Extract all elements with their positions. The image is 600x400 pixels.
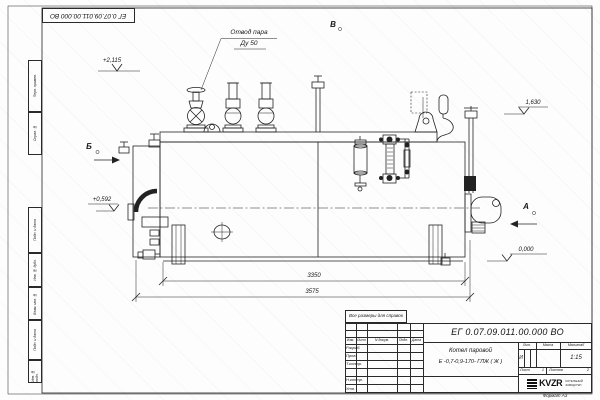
row-label-nkontr: Н.контр. xyxy=(346,376,368,384)
format-note: Формат А3 xyxy=(520,393,590,400)
frame-label-perv-primen: Перв. примен. xyxy=(28,60,42,112)
corner-stamp: ЕГ 0.07.09.011.00.000 ВО xyxy=(42,8,135,23)
logo-caption: КОТЕЛЬНЫЙ ЗАВОД РЭП xyxy=(565,380,583,387)
frame-label-vzam-inv: Взам. инв. № xyxy=(28,287,42,320)
lit-header: Лит. xyxy=(518,342,536,349)
frame-label-podp-data-2: Подп. и дата xyxy=(28,320,42,360)
elevation-1630: 1,630 xyxy=(516,98,550,107)
front-fittings xyxy=(119,134,168,259)
frame-label-podp-data-1: Подп. и дата xyxy=(28,207,42,253)
view-label-a: А xyxy=(520,202,532,212)
elevation-0000: 0,000 xyxy=(508,245,544,254)
sheet-value: 1 xyxy=(542,369,544,373)
row-label-tkontr: Т.контр. xyxy=(346,360,368,368)
sheets-value: 2 xyxy=(587,369,589,373)
frame-label-inv-dubl: Инв. № дубл. xyxy=(28,253,42,287)
sheet-label: Лист xyxy=(520,369,530,373)
logo-text: KVZR xyxy=(539,379,562,388)
product-name-line2: Е -0,7-0,9-170- ГЛЖ ( Ж ) xyxy=(423,357,518,369)
corner-stamp-text: ЕГ 0.07.09.011.00.000 ВО xyxy=(50,12,126,19)
product-name-line1: Котел паровой xyxy=(423,345,518,357)
scale-value: 1:15 xyxy=(560,349,592,367)
elevation-0592: +0,592 xyxy=(85,195,119,204)
mass-header: Масса xyxy=(536,342,560,349)
doc-number: ЕГ 0.07.09.011.00.000 ВО xyxy=(423,323,592,342)
sheets-label: Листов xyxy=(549,369,563,373)
drawing-sheet: ЕГ 0.07.09.011.00.000 ВО Перв. примен. С… xyxy=(0,0,600,400)
burner-assembly xyxy=(441,194,501,265)
condensate-vessel xyxy=(354,136,367,191)
row-label-razrab: Разраб. xyxy=(346,344,368,352)
view-label-b: Б xyxy=(83,142,95,152)
col-header-data: Дата xyxy=(410,337,423,344)
view-label-v: В xyxy=(327,20,339,30)
frame-label-sprav-no: Справ. № xyxy=(28,112,42,155)
col-header-list: Лист xyxy=(356,337,367,344)
callout-steam-outlet-line1: Отвод пара xyxy=(219,29,279,38)
company-logo: KVZR КОТЕЛЬНЫЙ ЗАВОД РЭП xyxy=(518,374,592,393)
col-header-podp: Подп. xyxy=(397,337,410,344)
pressure-gauge-assembly xyxy=(411,92,453,141)
callout-steam-outlet-line2: Ду 50 xyxy=(219,40,279,49)
safety-valve-right xyxy=(256,83,276,132)
reference-note: Все размеры для справок xyxy=(345,310,407,323)
dimension-text-3350: 3350 xyxy=(294,272,334,280)
logo-mark-icon xyxy=(527,379,537,389)
row-label-prov: Пров. xyxy=(346,352,368,360)
manhole xyxy=(211,222,233,242)
safety-valve-left xyxy=(223,83,243,132)
steam-outlet-valve xyxy=(184,88,208,133)
view-arrow-b xyxy=(94,150,120,163)
sheets-cell: Листов 2 xyxy=(546,367,592,374)
elevation-2115: +2,115 xyxy=(94,56,130,65)
col-header-izm: Изм. xyxy=(345,337,356,344)
lit-value: И xyxy=(518,349,524,367)
view-arrow-a xyxy=(510,211,537,227)
sheet-cell: Лист 1 xyxy=(518,367,546,374)
row-label-utv: Утв. xyxy=(346,384,368,393)
rear-standpipe xyxy=(464,106,478,193)
frame-label-inv-podl: Инв. № подл. xyxy=(28,360,42,383)
col-header-ndoc: N докум. xyxy=(367,337,397,344)
dimension-text-3575: 3575 xyxy=(292,288,332,296)
scale-header: Масштаб xyxy=(560,342,592,349)
riser-pipe xyxy=(312,76,324,132)
support-skids xyxy=(172,225,442,264)
